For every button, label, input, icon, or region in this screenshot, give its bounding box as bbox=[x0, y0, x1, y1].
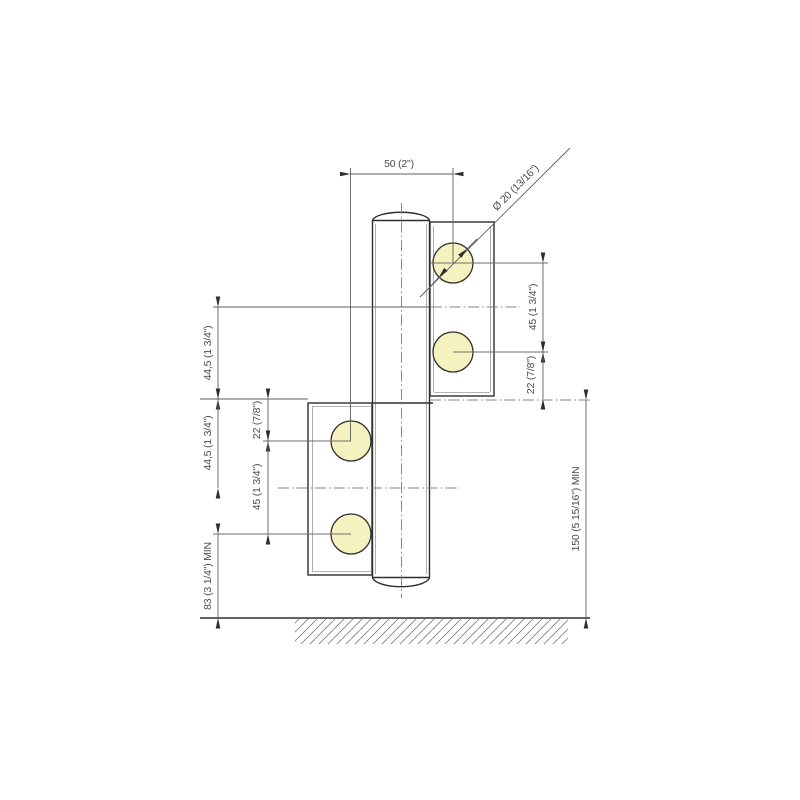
dimension-left-hole-spacing: 45 (1 3/4") bbox=[251, 441, 268, 534]
dimension-label: 150 (5 15/16") MIN bbox=[570, 467, 582, 552]
dimension-label: 83 (3 1/4") MIN bbox=[202, 542, 214, 610]
hinge-barrel bbox=[372, 212, 433, 586]
barrel-bottom-cap bbox=[373, 578, 430, 587]
dimension-label: 45 (1 3/4") bbox=[251, 464, 263, 510]
dimension-floor-min-hole: 83 (3 1/4") MIN bbox=[202, 534, 218, 618]
dimension-right-hole-to-edge: 22 (7/8") bbox=[525, 352, 543, 399]
floor bbox=[200, 618, 590, 644]
dimension-right-hole-spacing: 45 (1 3/4") bbox=[527, 263, 543, 352]
dimension-label: 22 (7/8") bbox=[251, 401, 263, 439]
dimension-label: 45 (1 3/4") bbox=[527, 284, 539, 330]
dimension-left-edge-to-hole: 22 (7/8") bbox=[251, 399, 268, 441]
floor-hatching bbox=[295, 619, 568, 644]
dimension-label: 22 (7/8") bbox=[525, 356, 537, 394]
dimension-label: 50 (2") bbox=[384, 158, 414, 170]
dimension-label: 44,5 (1 3/4") bbox=[202, 416, 214, 471]
dimension-label: Ø 20 (13/16") bbox=[490, 162, 541, 213]
barrel-body bbox=[373, 221, 430, 578]
hinge-technical-drawing: 50 (2") Ø 20 (13/16") 45 (1 3/4") 22 (7/… bbox=[0, 0, 800, 800]
dimension-label: 44,5 (1 3/4") bbox=[202, 326, 214, 381]
drawing-canvas: 50 (2") Ø 20 (13/16") 45 (1 3/4") 22 (7/… bbox=[0, 0, 800, 800]
barrel-top-cap bbox=[373, 212, 430, 220]
dimension-left-bottom-half: 44,5 (1 3/4") bbox=[202, 399, 218, 488]
dimension-floor-min-center: 150 (5 15/16") MIN bbox=[570, 400, 586, 618]
